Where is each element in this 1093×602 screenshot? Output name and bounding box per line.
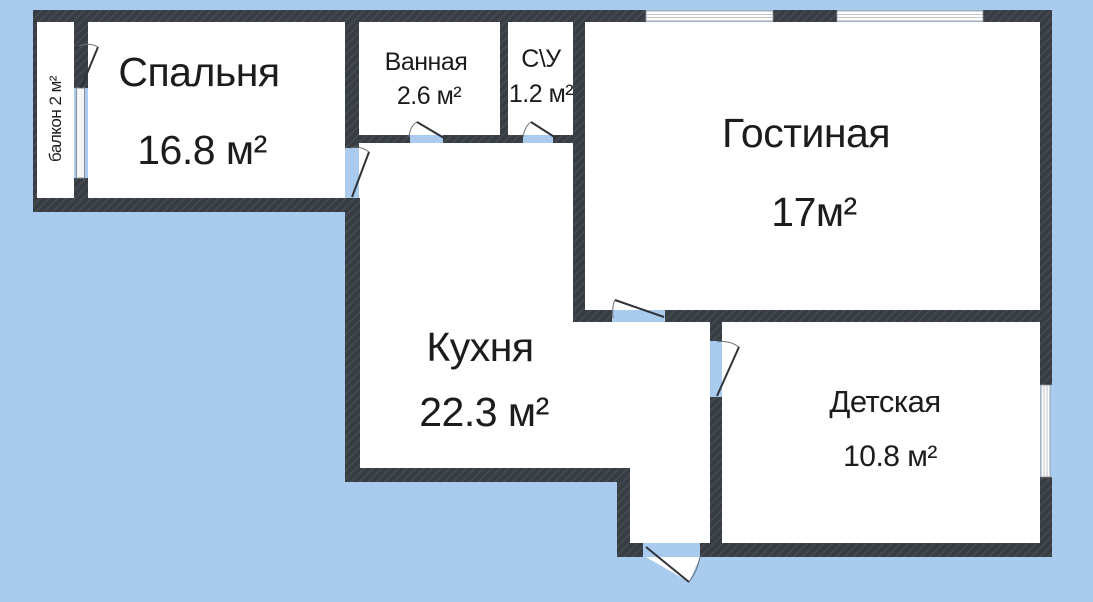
wall-kids-left-lower (710, 397, 722, 543)
wall-bottom-1 (617, 543, 643, 557)
wall-bathroom-bottom-2 (443, 135, 523, 143)
living-name-label: Гостиная (722, 110, 890, 156)
wall-balcony-bedroom-lower (74, 178, 88, 198)
wall-living-bottom-2 (665, 310, 1052, 322)
wall-balcony-outer (33, 10, 37, 212)
kids-room (722, 322, 1040, 543)
bathroom-room (359, 22, 500, 135)
kids-window-icon (1041, 385, 1050, 477)
wall-bedroom-bottom (33, 198, 360, 212)
wc-area-label: 1.2 м² (509, 80, 573, 108)
wall-top-left (33, 10, 646, 22)
living-area-label: 17м² (771, 189, 856, 235)
floor-plan-drawing: Спальня 16.8 м² Ванная 2.6 м² С\У 1.2 м²… (0, 0, 1093, 602)
bedroom-name-label: Спальня (118, 49, 279, 95)
wall-top-middle (773, 10, 837, 22)
wc-name-label: С\У (521, 45, 561, 73)
wall-living-bottom-1 (573, 310, 612, 322)
balcony-name-label: балкон 2 м² (46, 75, 65, 162)
wall-bedroom-right (345, 22, 359, 148)
living-window-2-icon (837, 11, 983, 21)
living-room (585, 22, 1040, 310)
kids-area-label: 10.8 м² (843, 440, 937, 473)
floor-plan: Спальня 16.8 м² Ванная 2.6 м² С\У 1.2 м²… (0, 0, 1093, 602)
kids-name-label: Детская (829, 384, 940, 419)
living-window-1-icon (646, 11, 773, 21)
kitchen-area-label: 22.3 м² (419, 389, 549, 435)
wc-room (508, 22, 573, 135)
wall-kitchen-left (345, 198, 360, 482)
wall-right-upper (1040, 10, 1052, 385)
bathroom-name-label: Ванная (385, 48, 468, 76)
wall-kitchen-bottom (345, 468, 630, 482)
wall-bottom-2 (700, 543, 1052, 557)
bedroom-area-label: 16.8 м² (137, 127, 267, 173)
wall-living-left (573, 10, 585, 322)
wall-right-lower (1040, 477, 1052, 557)
wall-bathroom-wc-divider (500, 22, 508, 135)
kitchen-name-label: Кухня (426, 324, 533, 370)
wall-bathroom-bottom-1 (345, 135, 410, 143)
bathroom-area-label: 2.6 м² (397, 82, 461, 110)
wall-kids-left-upper (710, 322, 722, 341)
balcony-door-window-icon (77, 88, 85, 178)
